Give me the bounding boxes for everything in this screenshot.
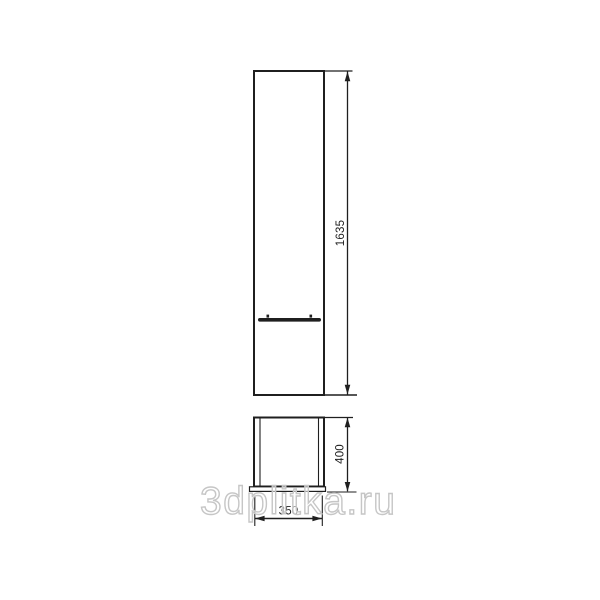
- front-view-outline: [254, 71, 324, 395]
- arrow-up-icon: [345, 418, 351, 428]
- height-dimension-label: 1635: [335, 220, 347, 246]
- watermark-text: 3dplitka.ru: [200, 480, 396, 523]
- depth-dimension-label: 400: [335, 444, 347, 464]
- handle-bar: [258, 318, 321, 322]
- arrow-down-icon: [345, 385, 351, 395]
- handle-mount-right: [310, 315, 313, 318]
- base-view-outline: [254, 418, 324, 487]
- drawing-canvas: 1635 400: [0, 0, 600, 600]
- arrow-up-icon: [345, 72, 351, 82]
- handle-mount-left: [267, 315, 270, 318]
- front-view: 1635: [254, 71, 357, 395]
- cabinet-dimension-drawing: 1635 400: [0, 0, 600, 600]
